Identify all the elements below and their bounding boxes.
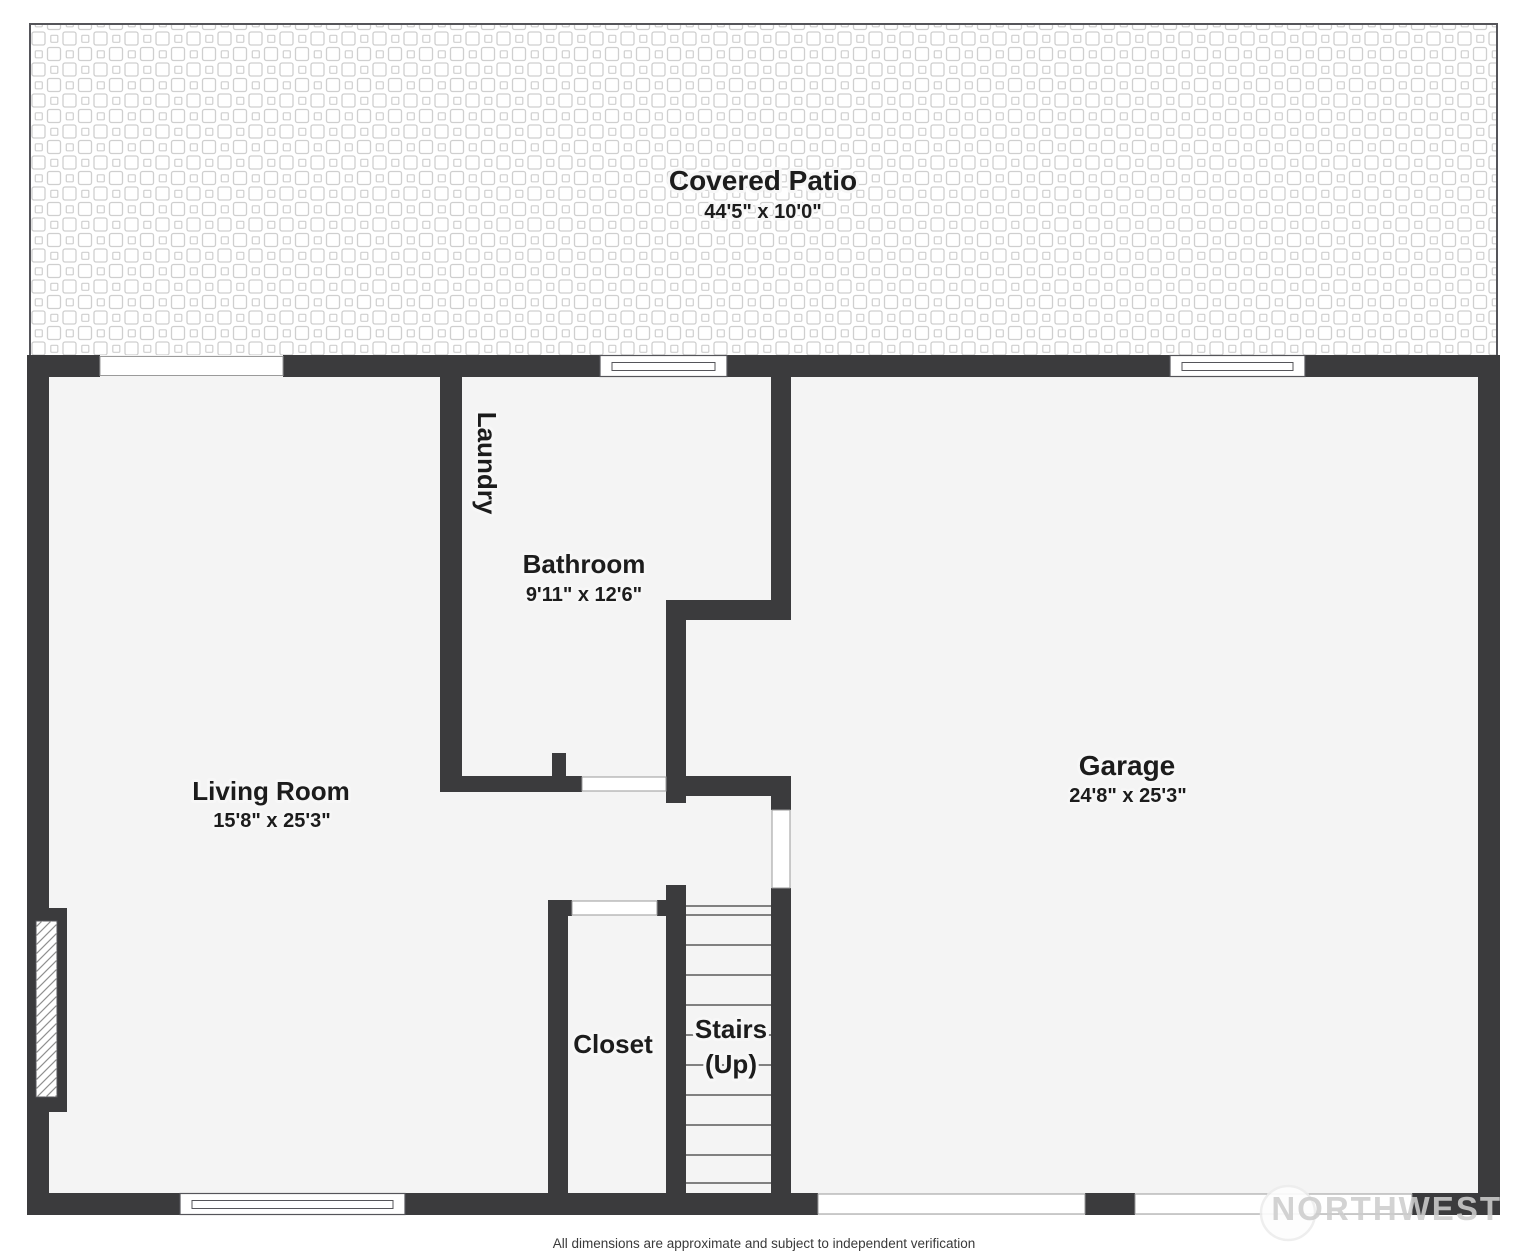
room-label-garage: Garage: [1079, 750, 1176, 781]
room-label-laundry: Laundry: [472, 412, 502, 515]
room-label-living-room: Living Room: [192, 776, 349, 806]
wall-bathroom-bottom: [440, 776, 582, 792]
garage-window: [1170, 356, 1305, 377]
wall-top-c: [727, 355, 1170, 377]
room-label-closet: Closet: [573, 1029, 653, 1059]
bathroom-door-opening: [582, 777, 666, 791]
floor-plan-canvas: NORTHWEST Covered Patio 44'5" x 10'0" La…: [0, 0, 1527, 1256]
wall-bottom-c: [1085, 1193, 1135, 1215]
room-label-stairs: Stairs: [695, 1014, 767, 1044]
bathroom-window: [600, 356, 727, 377]
room-dims-living-room: 15'8" x 25'3": [213, 810, 330, 832]
closet-door-opening: [572, 901, 657, 915]
room-dims-covered-patio: 44'5" x 10'0": [704, 201, 821, 223]
wall-top-d: [1305, 355, 1500, 377]
room-label-stairs-up: (Up): [705, 1049, 757, 1079]
wall-garage-left-upper: [771, 776, 791, 810]
wall-bottom-b: [405, 1193, 818, 1215]
garage-door-opening-left: [818, 1194, 1085, 1214]
wall-closet-stairs: [666, 885, 686, 1193]
wall-top-b: [283, 355, 600, 377]
fireplace: [27, 908, 67, 1112]
garage-entry-door-opening: [772, 810, 790, 888]
living-room-window: [180, 1194, 405, 1215]
wall-closet-top-b: [657, 900, 686, 916]
fireplace-hatch: [36, 921, 57, 1097]
wall-right: [1478, 355, 1500, 1215]
wall-hall-left: [666, 600, 686, 803]
watermark: NORTHWEST: [1261, 1186, 1502, 1240]
disclaimer-text: All dimensions are approximate and subje…: [553, 1236, 976, 1251]
wall-closet-top-a: [548, 900, 572, 916]
wall-stub-bathroom-door: [552, 753, 566, 777]
watermark-text: NORTHWEST: [1271, 1190, 1502, 1227]
patio-door-opening: [100, 357, 283, 376]
room-label-bathroom: Bathroom: [523, 549, 646, 579]
floorplan-image: NORTHWEST Covered Patio 44'5" x 10'0" La…: [0, 0, 1527, 1256]
wall-bathroom-right: [771, 377, 791, 600]
wall-livingroom-bathroom: [440, 377, 462, 792]
wall-closet-left: [548, 900, 568, 1193]
wall-bottom-a: [27, 1193, 180, 1215]
wall-garage-left-lower: [771, 888, 791, 1193]
room-dims-garage: 24'8" x 25'3": [1069, 785, 1186, 807]
room-label-covered-patio: Covered Patio: [669, 165, 857, 196]
room-dims-bathroom: 9'11" x 12'6": [526, 584, 642, 606]
wall-bathroom-notch: [666, 600, 791, 620]
